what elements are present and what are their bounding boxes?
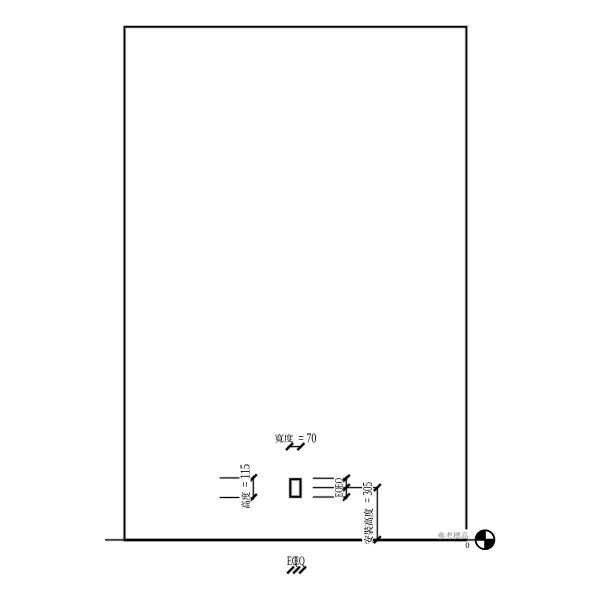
svg-text:= 305: = 305 [360,482,375,503]
svg-text:EQ: EQ [294,554,305,568]
svg-text:= 70: = 70 [298,431,316,446]
svg-text:= 115: = 115 [237,464,252,488]
svg-text:EQ: EQ [331,478,345,488]
svg-text:EQ: EQ [331,487,345,497]
svg-text:0: 0 [465,541,469,550]
